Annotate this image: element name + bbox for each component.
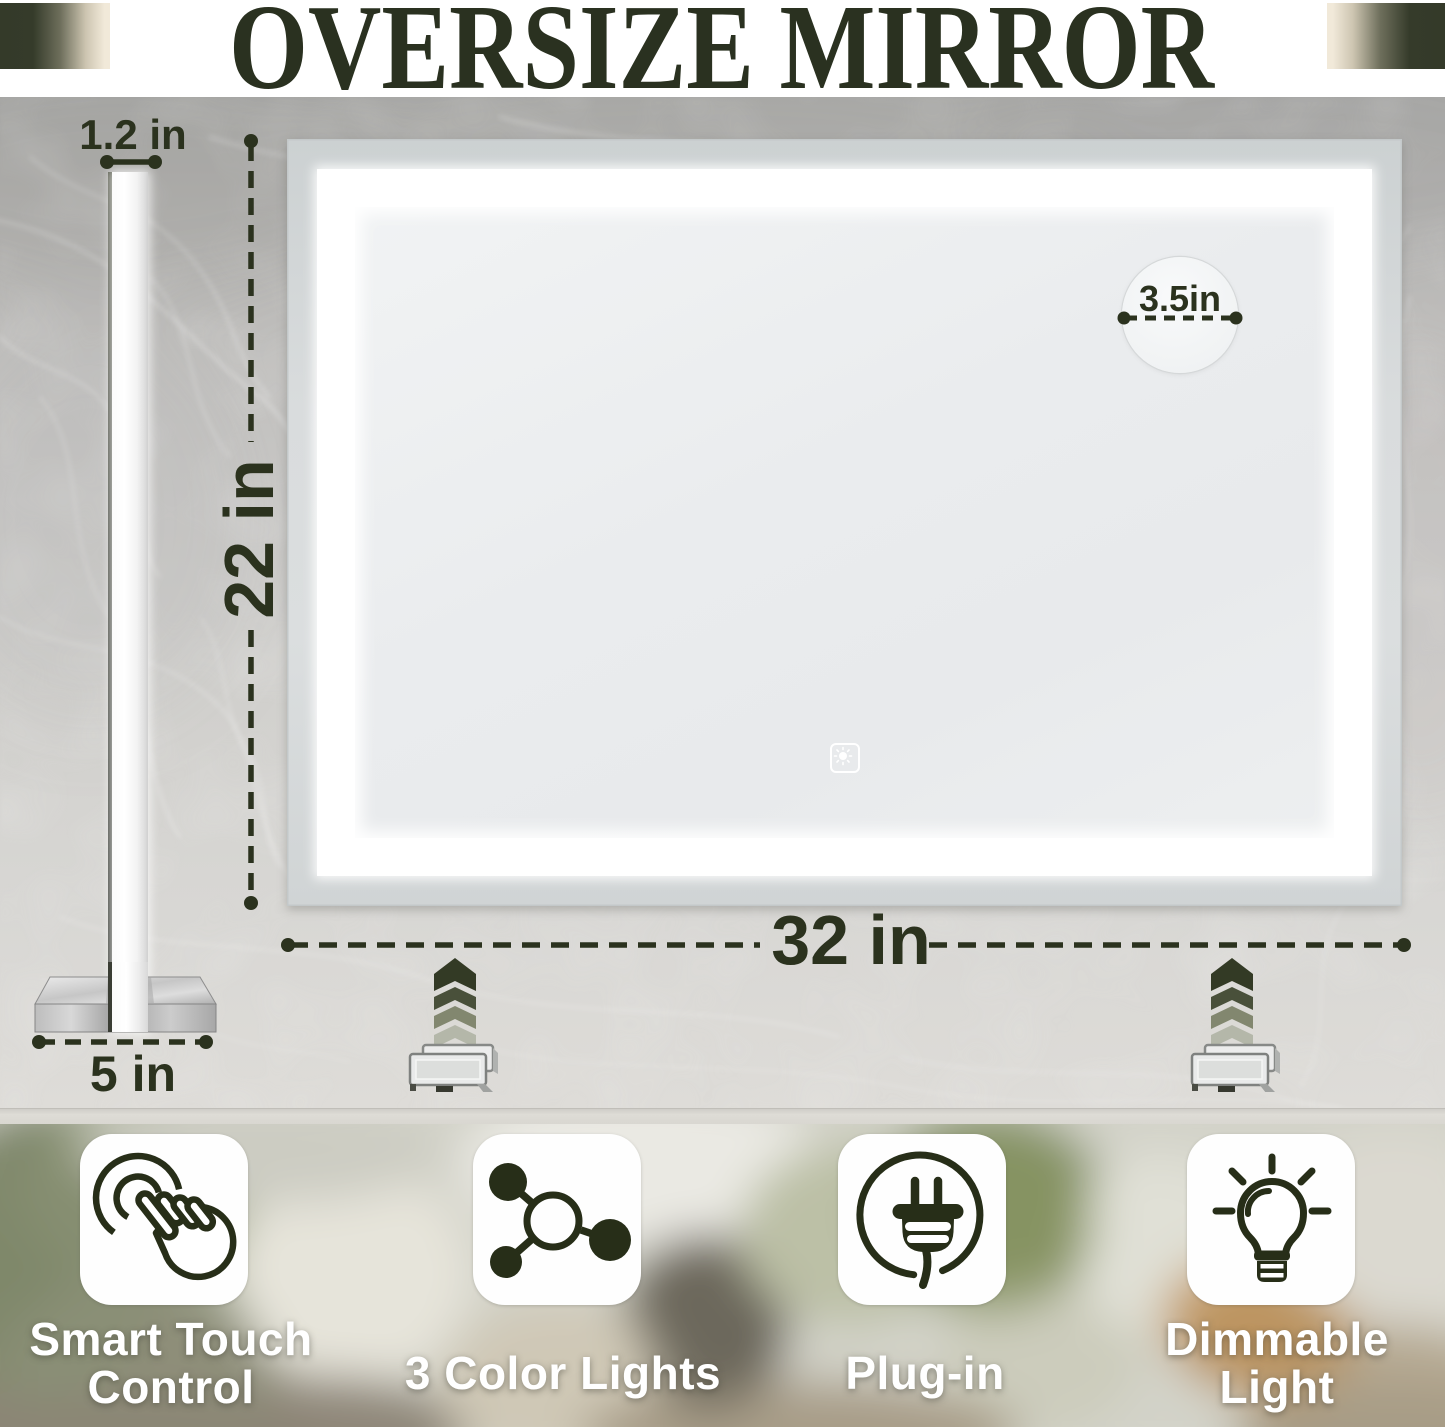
- svg-text:OVERSIZE MIRROR: OVERSIZE MIRROR: [229, 0, 1216, 97]
